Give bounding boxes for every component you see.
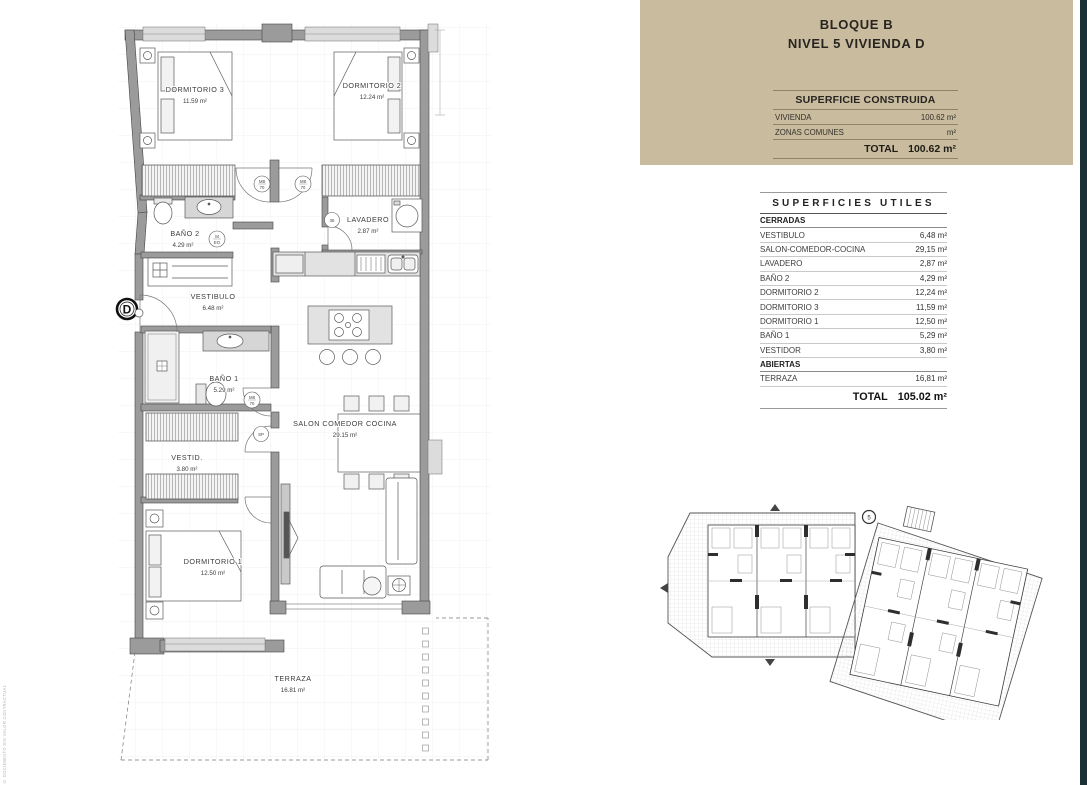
room-label-bano2: BAÑO 2 <box>170 229 199 238</box>
svg-text:12.50 m²: 12.50 m² <box>201 570 225 577</box>
room-label-bano1: BAÑO 1 <box>209 374 238 383</box>
svg-text:29.15 m²: 29.15 m² <box>333 432 357 439</box>
svg-text:70: 70 <box>250 401 255 406</box>
site-right-wing <box>826 520 1046 720</box>
table-row: DORMITORIO 112,50 m² <box>760 315 947 329</box>
room-label-dormitorio2: DORMITORIO 2 <box>343 81 402 90</box>
section-row: CERRADAS <box>760 214 947 228</box>
svg-text:70: 70 <box>260 185 265 190</box>
apartment-floorplan: DORMITORIO 3 11.59 m² DORMITORIO 2 12.24… <box>0 0 540 785</box>
level-marker: 5 <box>863 511 876 524</box>
svg-text:70: 70 <box>301 185 306 190</box>
svg-text:6.48 m²: 6.48 m² <box>203 305 224 312</box>
building-key-plan: 5 <box>650 495 1050 720</box>
room-label-lavadero: LAVADERO <box>347 215 389 224</box>
svg-text:2.87 m²: 2.87 m² <box>358 228 379 235</box>
svg-text:M8: M8 <box>259 179 266 184</box>
room-label-vestidor: VESTID. <box>171 453 202 462</box>
side-marker-bottom <box>765 659 775 666</box>
svg-text:12.24 m²: 12.24 m² <box>360 94 384 101</box>
utiles-total-row: TOTAL 105.02 m² <box>760 387 947 409</box>
door-code: M8 70 <box>244 392 260 408</box>
svg-text:M8: M8 <box>300 179 307 184</box>
table-row: VESTIBULO6,48 m² <box>760 228 947 242</box>
svg-text:5.29 m²: 5.29 m² <box>214 387 235 394</box>
svg-text:35: 35 <box>330 218 335 223</box>
table-row: VIVIENDA 100.62 m² <box>773 110 958 125</box>
door-code: 35 <box>325 213 340 228</box>
page-edge-strip <box>1080 0 1087 785</box>
svg-text:16.81 m²: 16.81 m² <box>281 687 305 694</box>
table-row: LAVADERO2,87 m² <box>760 257 947 271</box>
site-left-wing <box>660 504 855 666</box>
room-label-terraza: TERRAZA <box>274 674 311 683</box>
svg-text:EO: EO <box>214 240 221 245</box>
table-row: DORMITORIO 212,24 m² <box>760 286 947 300</box>
table-row: BAÑO 24,29 m² <box>760 272 947 286</box>
level-unit-title: NIVEL 5 VIVIENDA D <box>640 36 1073 51</box>
copyright-watermark: © DOCUMENTO SIN VALOR CONTRACTUAL <box>2 652 7 784</box>
svg-text:4.29 m²: 4.29 m² <box>173 242 194 249</box>
table-row: ZONAS COMUNES m² <box>773 125 958 140</box>
side-marker-left <box>660 583 668 593</box>
svg-text:D: D <box>123 303 132 317</box>
svg-text:3.80 m²: 3.80 m² <box>177 466 198 473</box>
construida-total-row: TOTAL 100.62 m² <box>773 140 958 159</box>
table-row: BAÑO 15,29 m² <box>760 329 947 343</box>
table-row: DORMITORIO 311,59 m² <box>760 300 947 314</box>
stair-core <box>903 506 935 531</box>
svg-text:M8: M8 <box>249 395 256 400</box>
superficies-utiles-table: SUPERFICIES UTILES CERRADAS VESTIBULO6,4… <box>760 192 947 409</box>
svg-text:SP: SP <box>258 432 264 437</box>
room-label-dormitorio1: DORMITORIO 1 <box>184 557 243 566</box>
svg-text:11.59 m²: 11.59 m² <box>183 98 207 105</box>
room-label-vestibulo: VESTIBULO <box>191 292 236 301</box>
utiles-title: SUPERFICIES UTILES <box>760 192 947 214</box>
room-label-salon: SALON COMEDOR COCINA <box>293 419 397 428</box>
superficie-construida-table: SUPERFICIE CONSTRUIDA VIVIENDA 100.62 m²… <box>773 90 958 159</box>
door-code: M8 70 <box>254 176 270 192</box>
room-label-dormitorio3: DORMITORIO 3 <box>166 85 225 94</box>
door-code: SP <box>254 427 269 442</box>
table-row: VESTIDOR3,80 m² <box>760 344 947 358</box>
north-marker-top <box>770 504 780 511</box>
table-row: SALON-COMEDOR-COCINA29,15 m² <box>760 243 947 257</box>
plan-sheet: DORMITORIO 3 11.59 m² DORMITORIO 2 12.24… <box>0 0 1087 785</box>
section-row: ABIERTAS <box>760 358 947 372</box>
svg-text:M: M <box>215 234 219 239</box>
door-code: M8 70 <box>295 176 311 192</box>
construida-title: SUPERFICIE CONSTRUIDA <box>773 91 958 110</box>
door-code: M EO <box>209 231 225 247</box>
table-row: TERRAZA16,81 m² <box>760 372 947 386</box>
unit-header-box: BLOQUE B NIVEL 5 VIVIENDA D SUPERFICIE C… <box>640 0 1073 165</box>
block-title: BLOQUE B <box>640 17 1073 32</box>
